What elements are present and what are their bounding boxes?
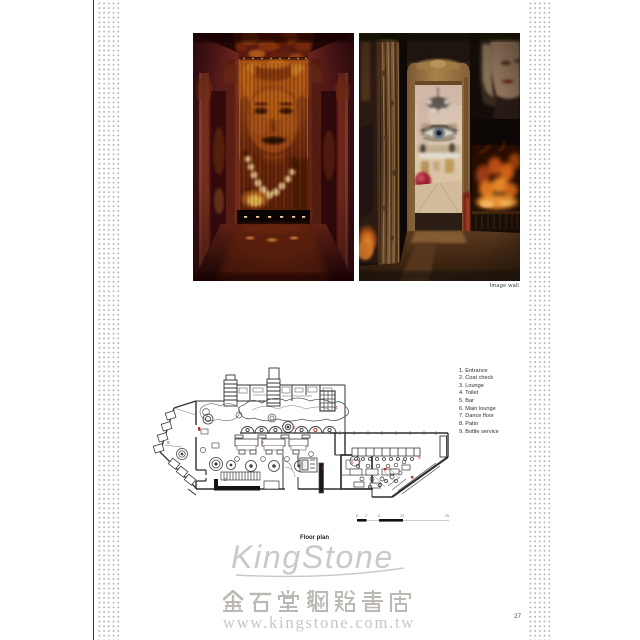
svg-text:9: 9 — [418, 455, 421, 460]
svg-text:3: 3 — [261, 440, 264, 445]
svg-text:6: 6 — [293, 425, 296, 430]
svg-text:10: 10 — [400, 514, 404, 518]
svg-text:0: 0 — [356, 514, 358, 518]
svg-text:5: 5 — [351, 460, 354, 465]
svg-text:2: 2 — [224, 477, 227, 482]
svg-text:2: 2 — [365, 514, 367, 518]
svg-text:7: 7 — [321, 466, 324, 471]
svg-text:8: 8 — [167, 440, 170, 445]
svg-text:4: 4 — [335, 405, 338, 410]
svg-text:25: 25 — [445, 514, 449, 518]
svg-text:5: 5 — [378, 514, 380, 518]
